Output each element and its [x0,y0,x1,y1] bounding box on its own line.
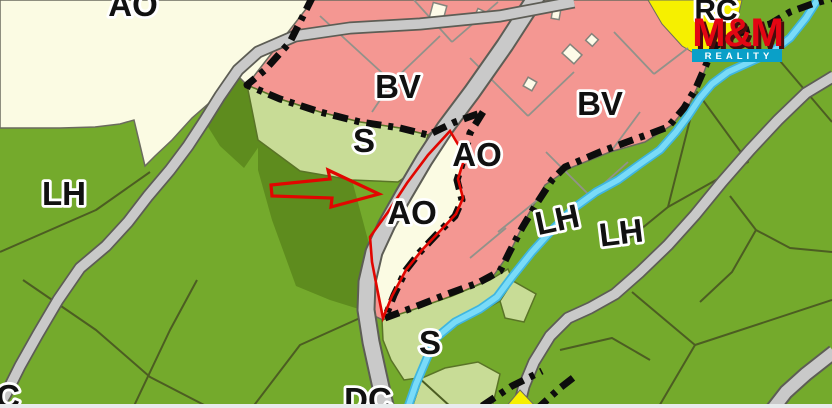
label-s-lower: S [419,324,441,361]
label-dc-bottom: DC [344,381,392,408]
zoning-map: AO BV BV S AO LH AO LH LH S DC C RC M&M … [0,0,832,408]
brand-text: M&M [692,11,782,55]
bottom-edge-strip [0,404,832,408]
label-lh-west: LH [42,175,86,212]
label-bv-west: BV [375,68,421,105]
label-bv-east: BV [577,85,623,122]
map-canvas: AO BV BV S AO LH AO LH LH S DC C RC M&M … [0,0,832,408]
label-s-upper: S [353,122,375,159]
label-lh-east: LH [597,211,645,253]
mm-reality-logo: M&M M&M REALITY [692,11,785,62]
label-ao-parcel: AO [387,194,437,231]
label-c-corner: C [0,378,20,408]
label-ao-top: AO [108,0,158,23]
label-ao-east: AO [452,136,502,173]
brand-tagline: REALITY [705,51,774,62]
